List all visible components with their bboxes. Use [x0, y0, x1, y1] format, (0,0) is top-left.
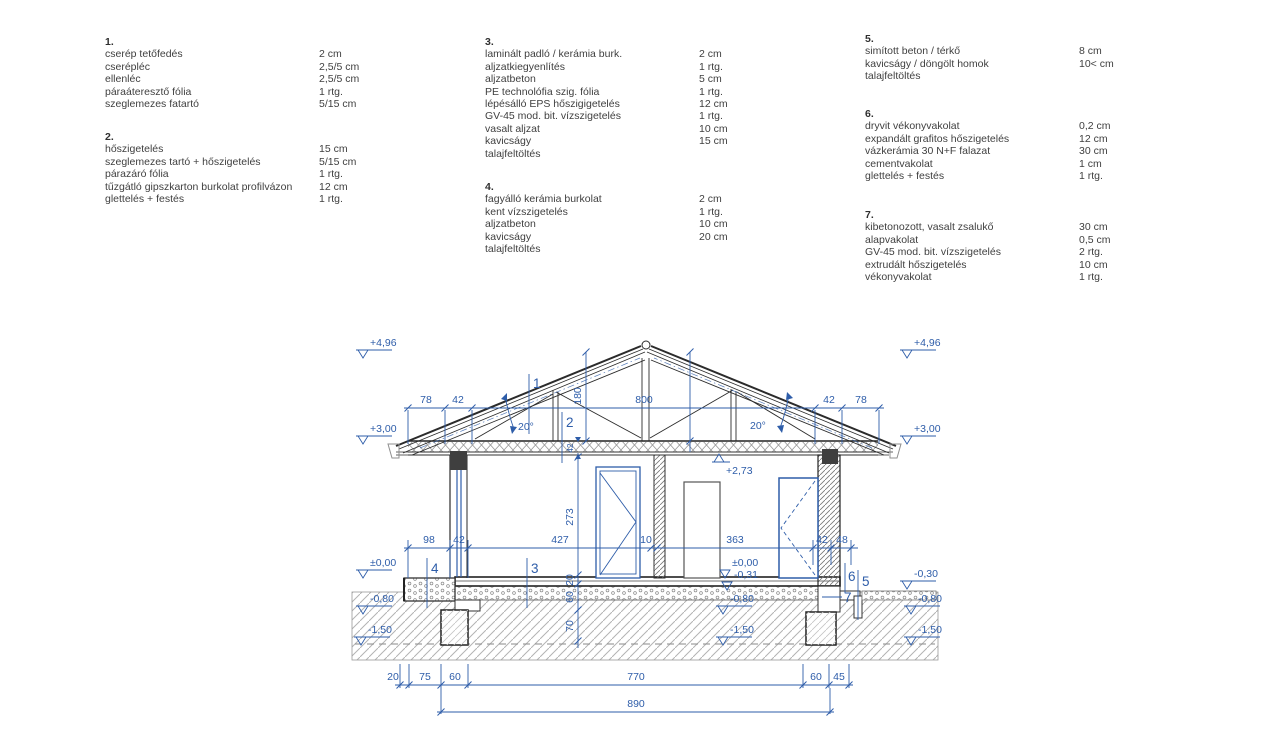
dim-label: 20 — [564, 574, 576, 586]
terrace-left — [404, 578, 455, 601]
door-opening — [684, 482, 720, 578]
level-label: -1,50 — [730, 624, 754, 636]
level-marker: -0,30 — [900, 568, 938, 589]
dim-label: 890 — [627, 698, 645, 710]
dim-label: 42 — [453, 534, 465, 546]
openings — [596, 467, 818, 578]
level-marker: ±0,00 — [356, 557, 396, 578]
level-label: +4,96 — [370, 337, 397, 349]
dim-label: 78 — [855, 394, 867, 406]
layer-ref-label: 4 — [431, 561, 439, 576]
level-label: +3,00 — [370, 423, 397, 435]
level-label: -0,31 — [734, 569, 758, 581]
level-label: -1,50 — [368, 624, 392, 636]
dim-label: 770 — [627, 671, 645, 683]
dim-label: 800 — [635, 394, 653, 406]
dim-label: 363 — [726, 534, 744, 546]
level-label: -0,30 — [914, 568, 938, 580]
level-label: ±0,00 — [732, 557, 758, 569]
dim-label: 45 — [833, 671, 845, 683]
level-marker: +4,96 — [900, 337, 941, 358]
layer-ref-label: 6 — [848, 569, 856, 584]
layer-ref-label: 3 — [531, 561, 539, 576]
dim-label: 60 — [810, 671, 822, 683]
dim-label: 42 — [452, 394, 464, 406]
layer-ref-label: 7 — [844, 590, 852, 605]
window-right — [779, 478, 818, 578]
dim-label: 42 — [566, 443, 575, 452]
dim-label: 75 — [419, 671, 431, 683]
dim-label: 98 — [423, 534, 435, 546]
dim-label: 10 — [640, 534, 652, 546]
dim-label: 42 — [816, 534, 828, 546]
dim-row-top: 78 42 800 42 78 — [404, 394, 884, 444]
dim-label: 60 — [564, 591, 576, 603]
level-label: ±0,00 — [370, 557, 396, 569]
dim-label: 42 — [823, 394, 835, 406]
level-label: -1,50 — [918, 624, 942, 636]
blueprint-page: { "specs": { "s1": {"num":"1.","rows":[ … — [0, 0, 1280, 749]
level-label: -0,80 — [370, 593, 394, 605]
level-label: +2,73 — [726, 465, 753, 477]
dim-label: 60 — [449, 671, 461, 683]
dim-label: 78 — [420, 394, 432, 406]
level-marker: +2,73 — [712, 454, 753, 477]
dim-label: 20 — [387, 671, 399, 683]
level-label: -0,80 — [730, 593, 754, 605]
dim-label: 70 — [564, 620, 576, 632]
level-label: -0,80 — [918, 593, 942, 605]
dim-label: 180 — [572, 387, 584, 405]
level-marker: +4,96 — [356, 337, 397, 358]
level-marker: +3,00 — [900, 423, 941, 444]
layer-ref-label: 2 — [566, 415, 574, 430]
angle-label: 20° — [518, 421, 534, 433]
ring-beam-right — [822, 449, 838, 464]
dim-label: 48 — [836, 534, 848, 546]
floor-slab — [455, 577, 840, 600]
section-drawing: 78 42 800 42 78 180 42 98 42 427 10 363 … — [0, 0, 1280, 749]
dim-row-bottom: 20 75 60 770 60 45 890 — [387, 664, 853, 716]
dim-label: 427 — [551, 534, 569, 546]
level-label: +4,96 — [914, 337, 941, 349]
layer-ref-label: 5 — [862, 574, 870, 589]
wall-right — [818, 455, 840, 586]
level-label: +3,00 — [914, 423, 941, 435]
dim-label: 273 — [564, 508, 576, 526]
ring-beam-left — [450, 451, 467, 470]
ceiling — [408, 441, 878, 455]
interior-door — [596, 467, 640, 578]
angle-label: 20° — [750, 420, 766, 432]
level-marker: +3,00 — [356, 423, 397, 444]
layer-ref-label: 1 — [533, 376, 541, 391]
partition-wall — [654, 455, 665, 578]
